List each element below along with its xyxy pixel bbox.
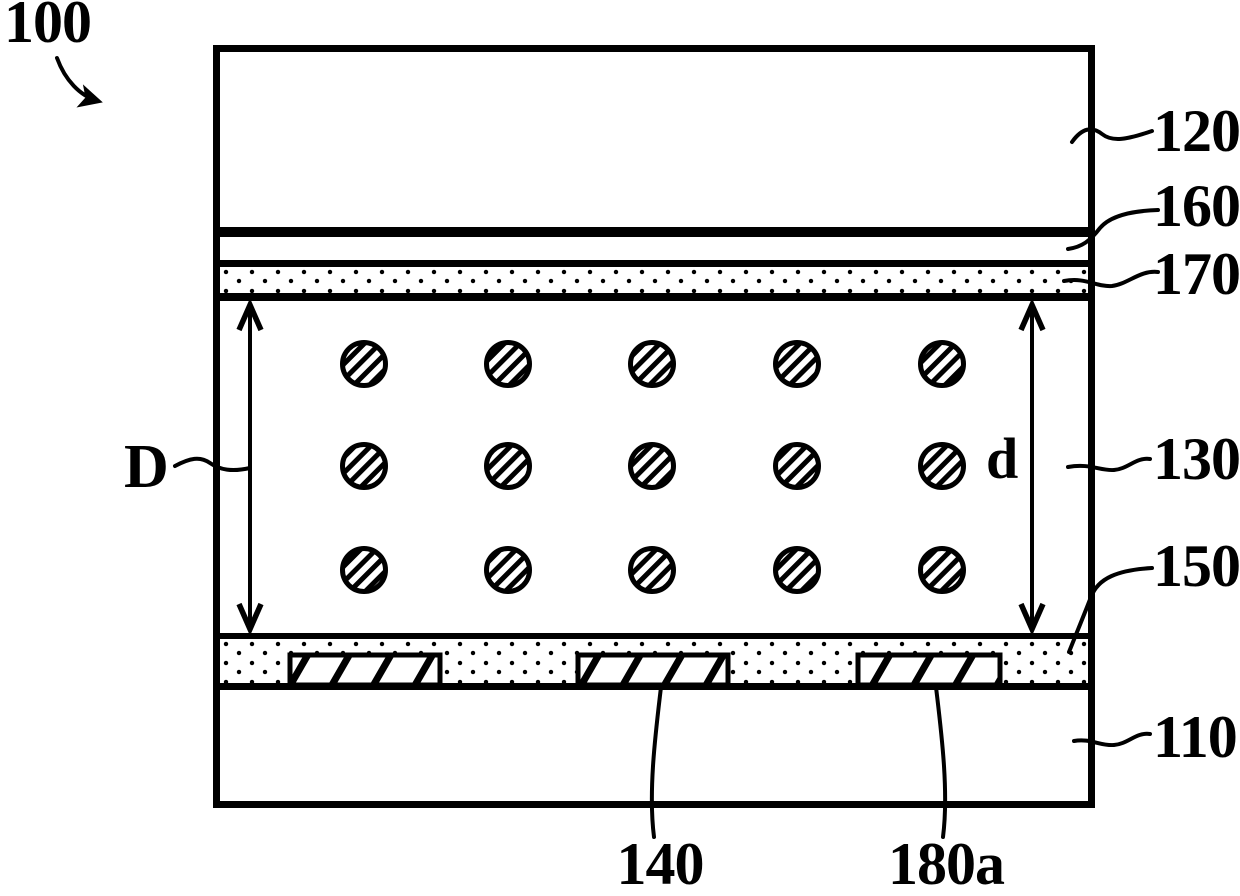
label-120: 120 xyxy=(1153,101,1240,161)
layer-boundary-line-5 xyxy=(220,683,1088,690)
label-dimension-D: D xyxy=(124,436,168,498)
layer-170-upper-coating xyxy=(220,267,1088,293)
layer-150-lower-coating xyxy=(220,639,1088,683)
label-140: 140 xyxy=(617,834,704,894)
label-130: 130 xyxy=(1153,429,1240,489)
layer-160-electrode-layer xyxy=(220,237,1088,260)
layer-130-display-medium xyxy=(220,301,1088,633)
patent-figure-canvas: 100 120 160 170 130 150 110 140 180a D d xyxy=(0,0,1240,896)
label-180a: 180a xyxy=(888,834,1004,894)
layer-120-top-substrate xyxy=(220,52,1088,227)
figure-number-arrow xyxy=(57,58,98,101)
label-dimension-d: d xyxy=(986,430,1017,488)
label-160: 160 xyxy=(1153,176,1240,236)
label-110: 110 xyxy=(1153,707,1237,767)
layer-boundary-line-2 xyxy=(220,260,1088,267)
label-170: 170 xyxy=(1153,244,1240,304)
layer-110-bottom-substrate xyxy=(220,690,1088,801)
layer-boundary-line-1 xyxy=(220,227,1088,237)
label-150: 150 xyxy=(1153,536,1240,596)
label-figure-number: 100 xyxy=(4,0,91,52)
layer-boundary-line-3 xyxy=(220,293,1088,301)
